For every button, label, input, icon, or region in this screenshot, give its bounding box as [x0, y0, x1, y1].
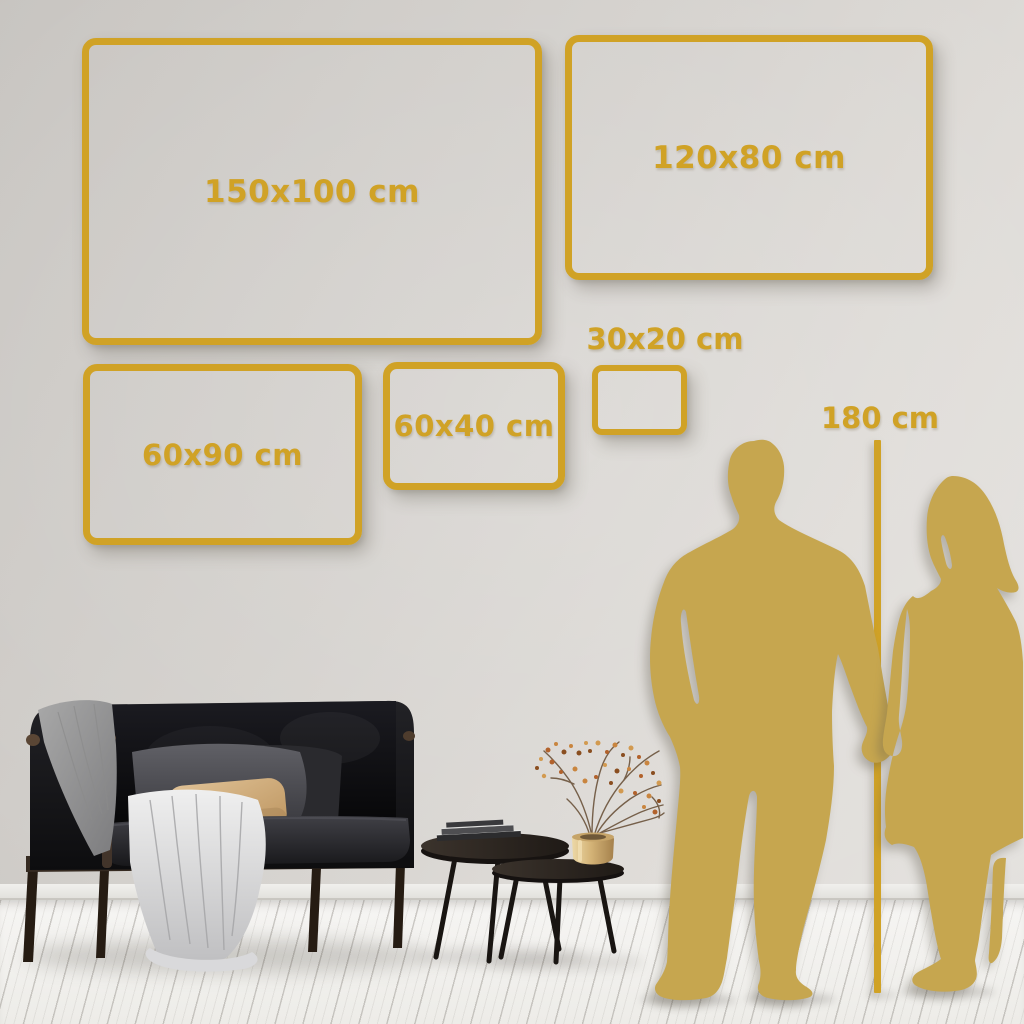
woman-silhouette [883, 476, 1023, 992]
coffee-table-large [421, 833, 569, 961]
sofa-wood-knob [403, 731, 415, 741]
brass-vase [572, 833, 614, 865]
coffee-table-small [492, 859, 624, 962]
sofa-wood-knob [26, 734, 40, 746]
room-scene [0, 0, 1024, 1024]
plant-branches [544, 742, 664, 836]
sofa [23, 700, 415, 971]
man-silhouette [650, 440, 896, 1000]
